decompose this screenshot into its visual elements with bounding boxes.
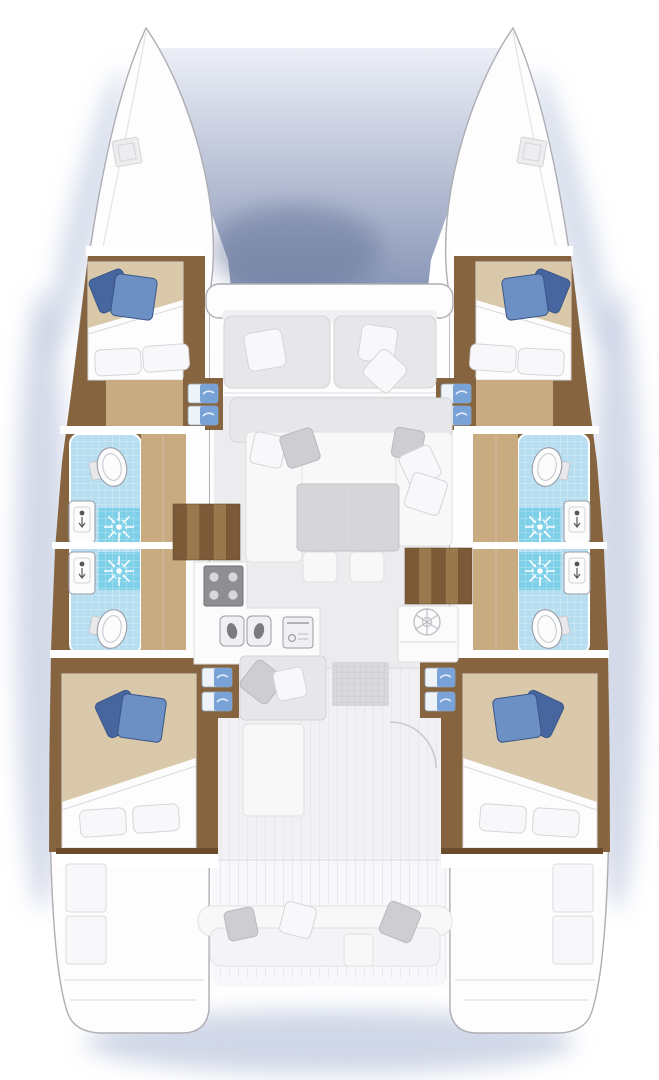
- oven-icon: [283, 617, 313, 648]
- entry-step: [202, 668, 232, 687]
- pillow-white: [469, 343, 517, 372]
- starboard-bow-bulkhead: [453, 246, 573, 256]
- shower-drain-icon: [525, 556, 555, 586]
- floor-mat-grid: [332, 662, 389, 706]
- floor-plan-canvas: [0, 0, 659, 1080]
- shower-drain-icon: [104, 556, 134, 586]
- pillow-white: [517, 348, 564, 376]
- pillow-white: [532, 807, 580, 837]
- transom-bulkhead-wood: [441, 848, 603, 854]
- washbasin-icon: [564, 552, 590, 594]
- entry-step: [188, 384, 218, 403]
- washbasin-icon: [69, 552, 95, 594]
- bulkhead: [441, 650, 609, 658]
- transom-bulkhead-wood: [56, 848, 218, 854]
- shower-drain-icon: [104, 512, 134, 542]
- pillow-white: [79, 807, 127, 837]
- port-hull-companionway: [173, 504, 240, 560]
- washbasin-icon: [69, 501, 95, 543]
- pillow-white: [243, 328, 287, 372]
- pillow-gray: [223, 906, 259, 942]
- washbasin-icon: [564, 501, 590, 543]
- port-bow-hatch-icon: [112, 137, 142, 167]
- stove-icon: [204, 566, 243, 606]
- chaise-lounge: [243, 724, 304, 816]
- pillow-white: [479, 803, 527, 833]
- center-seat: [344, 934, 373, 966]
- pillow-blue: [110, 273, 157, 320]
- bulkhead: [50, 650, 218, 658]
- bulkhead: [473, 542, 607, 549]
- port-bow-bulkhead: [86, 246, 206, 256]
- entry-step: [425, 692, 455, 711]
- pillow-white: [142, 343, 190, 372]
- pillow-blue: [492, 693, 542, 743]
- pillow-blue: [117, 693, 167, 743]
- entry-step: [188, 406, 218, 425]
- starboard-counter: [398, 606, 458, 662]
- forward-cockpit: [222, 310, 437, 395]
- stool: [350, 552, 384, 582]
- entry-step: [202, 692, 232, 711]
- entry-step: [425, 668, 455, 687]
- cabin-wood-floor: [106, 380, 183, 428]
- bulkhead: [52, 542, 186, 549]
- bulkhead: [454, 426, 599, 434]
- stool: [303, 552, 337, 582]
- pillow-white: [272, 666, 308, 702]
- starboard-bow-hatch-icon: [517, 137, 547, 167]
- pillow-white: [132, 803, 180, 833]
- starboard-hull-companionway: [405, 548, 472, 604]
- trampoline-shadow: [210, 205, 380, 295]
- cabin-wood-floor: [476, 380, 553, 428]
- bulkhead: [60, 426, 205, 434]
- shower-drain-icon: [525, 512, 555, 542]
- pillow-white: [94, 348, 141, 376]
- pillow-blue: [501, 273, 548, 320]
